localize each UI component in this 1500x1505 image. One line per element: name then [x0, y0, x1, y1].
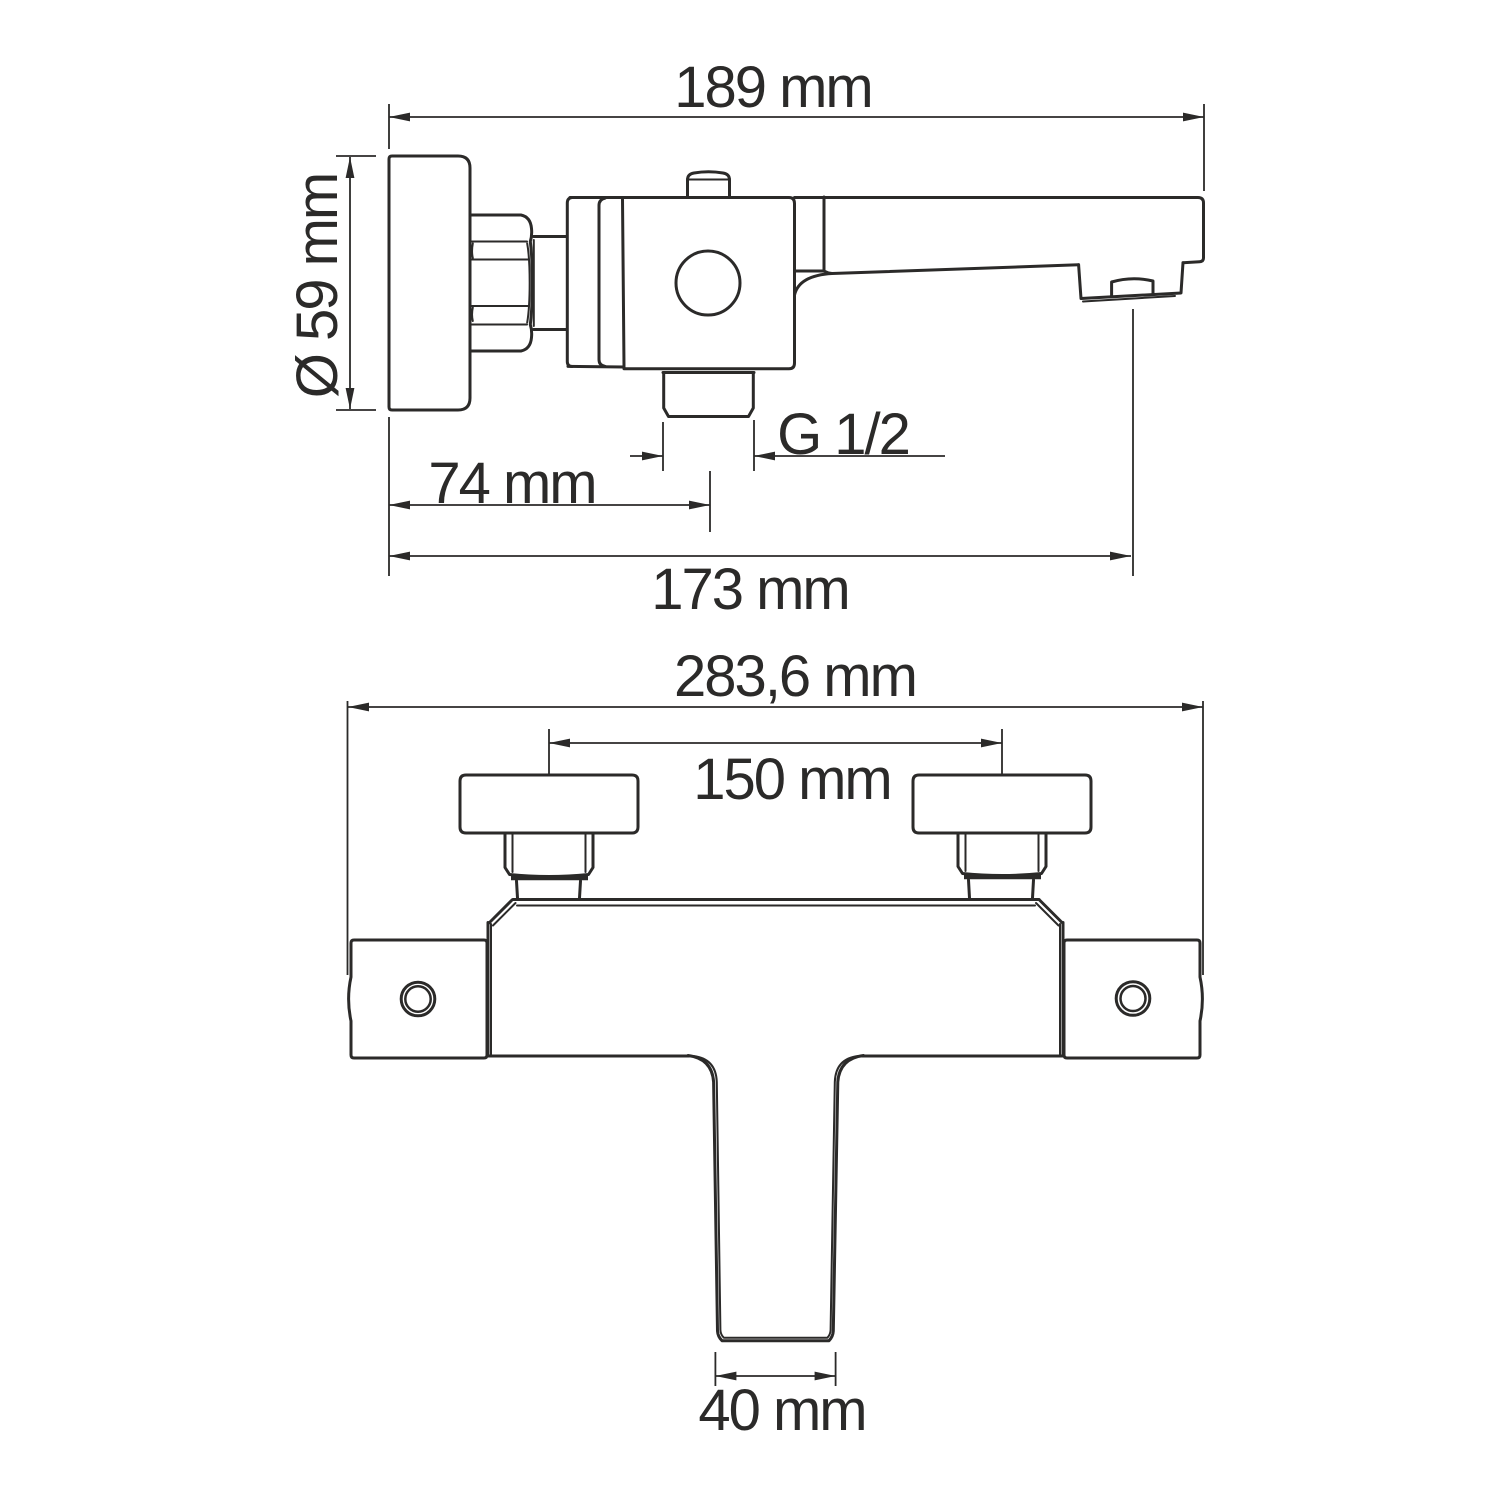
- svg-text:173 mm: 173 mm: [651, 557, 849, 622]
- svg-text:40 mm: 40 mm: [698, 1378, 865, 1443]
- svg-text:Ø 59 mm: Ø 59 mm: [285, 174, 350, 399]
- svg-text:189 mm: 189 mm: [674, 55, 872, 120]
- svg-text:74 mm: 74 mm: [428, 451, 595, 516]
- svg-text:G 1/2: G 1/2: [777, 402, 909, 467]
- svg-text:150 mm: 150 mm: [693, 747, 891, 812]
- svg-text:283,6 mm: 283,6 mm: [674, 644, 916, 709]
